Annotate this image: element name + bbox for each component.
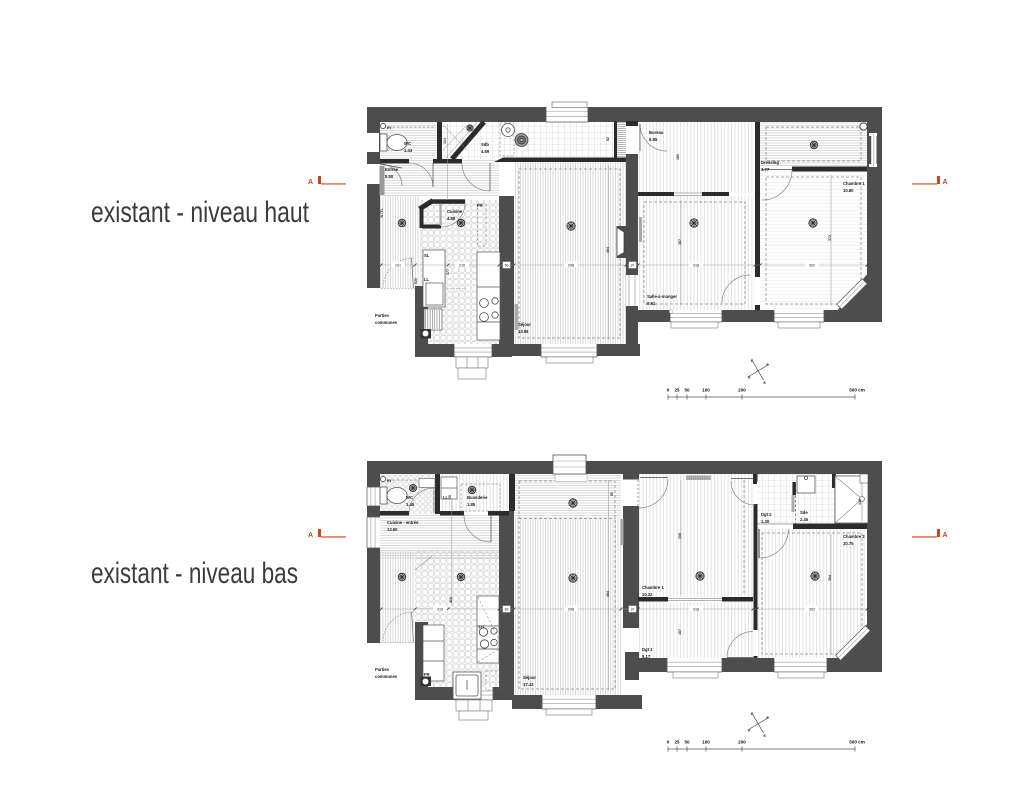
svg-text:WC: WC — [404, 141, 411, 146]
svg-text:Entrée: Entrée — [385, 167, 399, 172]
svg-text:484: 484 — [606, 591, 610, 597]
svg-text:0: 0 — [667, 388, 670, 393]
svg-text:200: 200 — [738, 388, 746, 393]
svg-text:n: n — [751, 711, 754, 716]
svg-text:Dressing: Dressing — [761, 160, 779, 165]
svg-text:50: 50 — [684, 388, 690, 393]
svg-text:3.77: 3.77 — [761, 167, 770, 172]
svg-text:372: 372 — [828, 235, 832, 241]
svg-text:FR: FR — [424, 672, 430, 677]
svg-text:318: 318 — [693, 263, 699, 267]
svg-text:10.80: 10.80 — [843, 188, 854, 193]
svg-text:Séjour: Séjour — [523, 675, 536, 680]
svg-text:50: 50 — [684, 740, 690, 745]
svg-text:180: 180 — [676, 154, 680, 160]
svg-text:Dgt 1: Dgt 1 — [642, 647, 653, 652]
svg-text:50: 50 — [505, 264, 509, 268]
svg-text:Bureau: Bureau — [649, 130, 664, 135]
svg-text:n: n — [751, 358, 754, 363]
svg-text:o: o — [748, 728, 751, 733]
svg-text:Sde: Sde — [800, 510, 808, 515]
svg-text:s: s — [763, 380, 766, 385]
svg-text:377: 377 — [446, 269, 450, 275]
svg-text:e: e — [766, 362, 769, 367]
svg-text:communes: communes — [375, 320, 398, 325]
svg-text:Cuisine - entrée: Cuisine - entrée — [387, 520, 419, 525]
svg-text:500 cm: 500 cm — [849, 740, 865, 745]
svg-text:Parties: Parties — [375, 313, 390, 318]
svg-text:1.30: 1.30 — [761, 519, 770, 524]
svg-text:85: 85 — [610, 492, 614, 496]
svg-text:187: 187 — [678, 629, 682, 635]
svg-text:Chambre 1: Chambre 1 — [843, 181, 865, 186]
svg-text:FR: FR — [477, 203, 483, 208]
svg-text:1.43: 1.43 — [404, 148, 413, 153]
svg-text:83: 83 — [505, 608, 509, 612]
svg-text:387: 387 — [678, 239, 682, 245]
svg-text:Chambre 1: Chambre 1 — [642, 585, 664, 590]
svg-text:1.45: 1.45 — [406, 502, 415, 507]
svg-text:358: 358 — [678, 533, 682, 539]
svg-text:13.98: 13.98 — [518, 329, 529, 334]
svg-text:Parties: Parties — [375, 667, 390, 672]
svg-text:101: 101 — [443, 138, 447, 144]
svg-text:302: 302 — [809, 607, 815, 611]
svg-text:LL: LL — [443, 495, 449, 500]
svg-text:500 cm: 500 cm — [849, 388, 865, 393]
svg-text:FO: FO — [479, 625, 486, 630]
svg-text:25: 25 — [674, 388, 680, 393]
svg-text:296: 296 — [568, 263, 574, 267]
svg-text:318: 318 — [693, 607, 699, 611]
svg-text:EV: EV — [387, 479, 392, 483]
svg-text:Séjour: Séjour — [518, 322, 531, 327]
svg-text:LL: LL — [424, 277, 430, 282]
svg-text:6.85: 6.85 — [649, 137, 658, 142]
svg-text:0: 0 — [667, 740, 670, 745]
svg-text:37: 37 — [631, 608, 635, 612]
svg-text:17.43: 17.43 — [523, 682, 534, 687]
svg-text:Chambre 2: Chambre 2 — [843, 534, 865, 539]
svg-text:Salle-à-manger: Salle-à-manger — [647, 294, 677, 299]
svg-text:4.88: 4.88 — [447, 216, 456, 221]
svg-text:319: 319 — [437, 607, 443, 611]
svg-text:2.45: 2.45 — [800, 517, 809, 522]
svg-text:296: 296 — [568, 607, 574, 611]
svg-text:existant - niveau haut: existant - niveau haut — [91, 196, 309, 229]
svg-text:A: A — [943, 532, 948, 539]
svg-text:Cuisine: Cuisine — [447, 209, 463, 214]
svg-text:EV: EV — [387, 126, 392, 130]
svg-text:55: 55 — [448, 495, 452, 499]
svg-text:Dgt 2: Dgt 2 — [761, 512, 772, 517]
svg-text:82: 82 — [606, 137, 610, 141]
svg-text:520: 520 — [414, 278, 418, 284]
svg-text:o: o — [748, 375, 751, 380]
svg-text:5.17: 5.17 — [642, 654, 651, 659]
svg-text:communes: communes — [375, 674, 398, 679]
svg-text:1.85: 1.85 — [467, 502, 476, 507]
svg-text:A: A — [308, 179, 313, 186]
svg-text:394: 394 — [828, 575, 832, 581]
svg-text:10.75: 10.75 — [843, 541, 854, 546]
svg-text:200: 200 — [738, 740, 746, 745]
svg-text:210: 210 — [459, 263, 465, 267]
svg-text:101: 101 — [395, 263, 401, 267]
svg-text:A: A — [308, 532, 313, 539]
svg-text:302: 302 — [809, 263, 815, 267]
svg-text:Sdb: Sdb — [481, 142, 489, 147]
svg-text:25: 25 — [674, 740, 680, 745]
svg-text:139: 139 — [858, 499, 862, 505]
svg-text:465: 465 — [449, 597, 453, 603]
svg-text:A: A — [943, 179, 948, 186]
svg-text:Buanderie: Buanderie — [467, 495, 488, 500]
svg-text:W.TEL: W.TEL — [380, 208, 384, 218]
svg-text:9:51: 9:51 — [647, 301, 656, 306]
svg-text:e: e — [766, 715, 769, 720]
svg-text:37: 37 — [631, 264, 635, 268]
svg-text:484: 484 — [606, 247, 610, 253]
svg-text:5.50: 5.50 — [385, 174, 394, 179]
svg-text:existant - niveau bas: existant - niveau bas — [91, 557, 298, 590]
svg-text:100: 100 — [702, 388, 710, 393]
svg-text:SL: SL — [424, 253, 430, 258]
svg-text:10.22: 10.22 — [642, 592, 653, 597]
svg-text:s: s — [763, 733, 766, 738]
svg-text:4.69: 4.69 — [481, 149, 490, 154]
svg-text:13.60: 13.60 — [387, 527, 398, 532]
svg-text:100: 100 — [702, 740, 710, 745]
svg-text:WC: WC — [406, 495, 413, 500]
